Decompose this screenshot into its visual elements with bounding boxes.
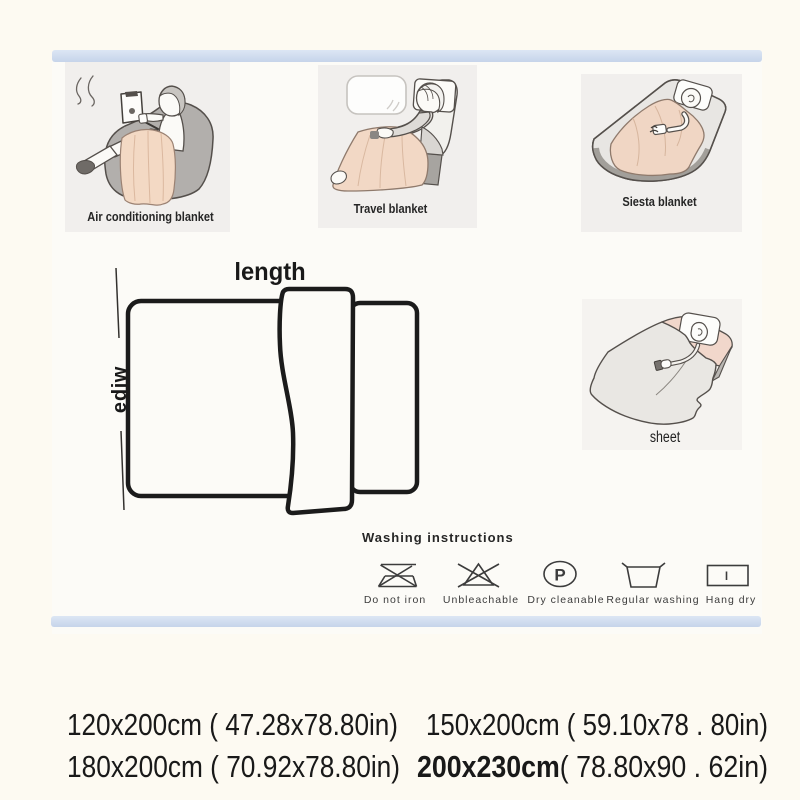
svg-text:e: e xyxy=(109,402,131,413)
svg-text:d: d xyxy=(109,389,131,401)
svg-text:P: P xyxy=(554,566,565,585)
svg-text:i: i xyxy=(109,383,131,389)
svg-text:w: w xyxy=(109,366,131,383)
